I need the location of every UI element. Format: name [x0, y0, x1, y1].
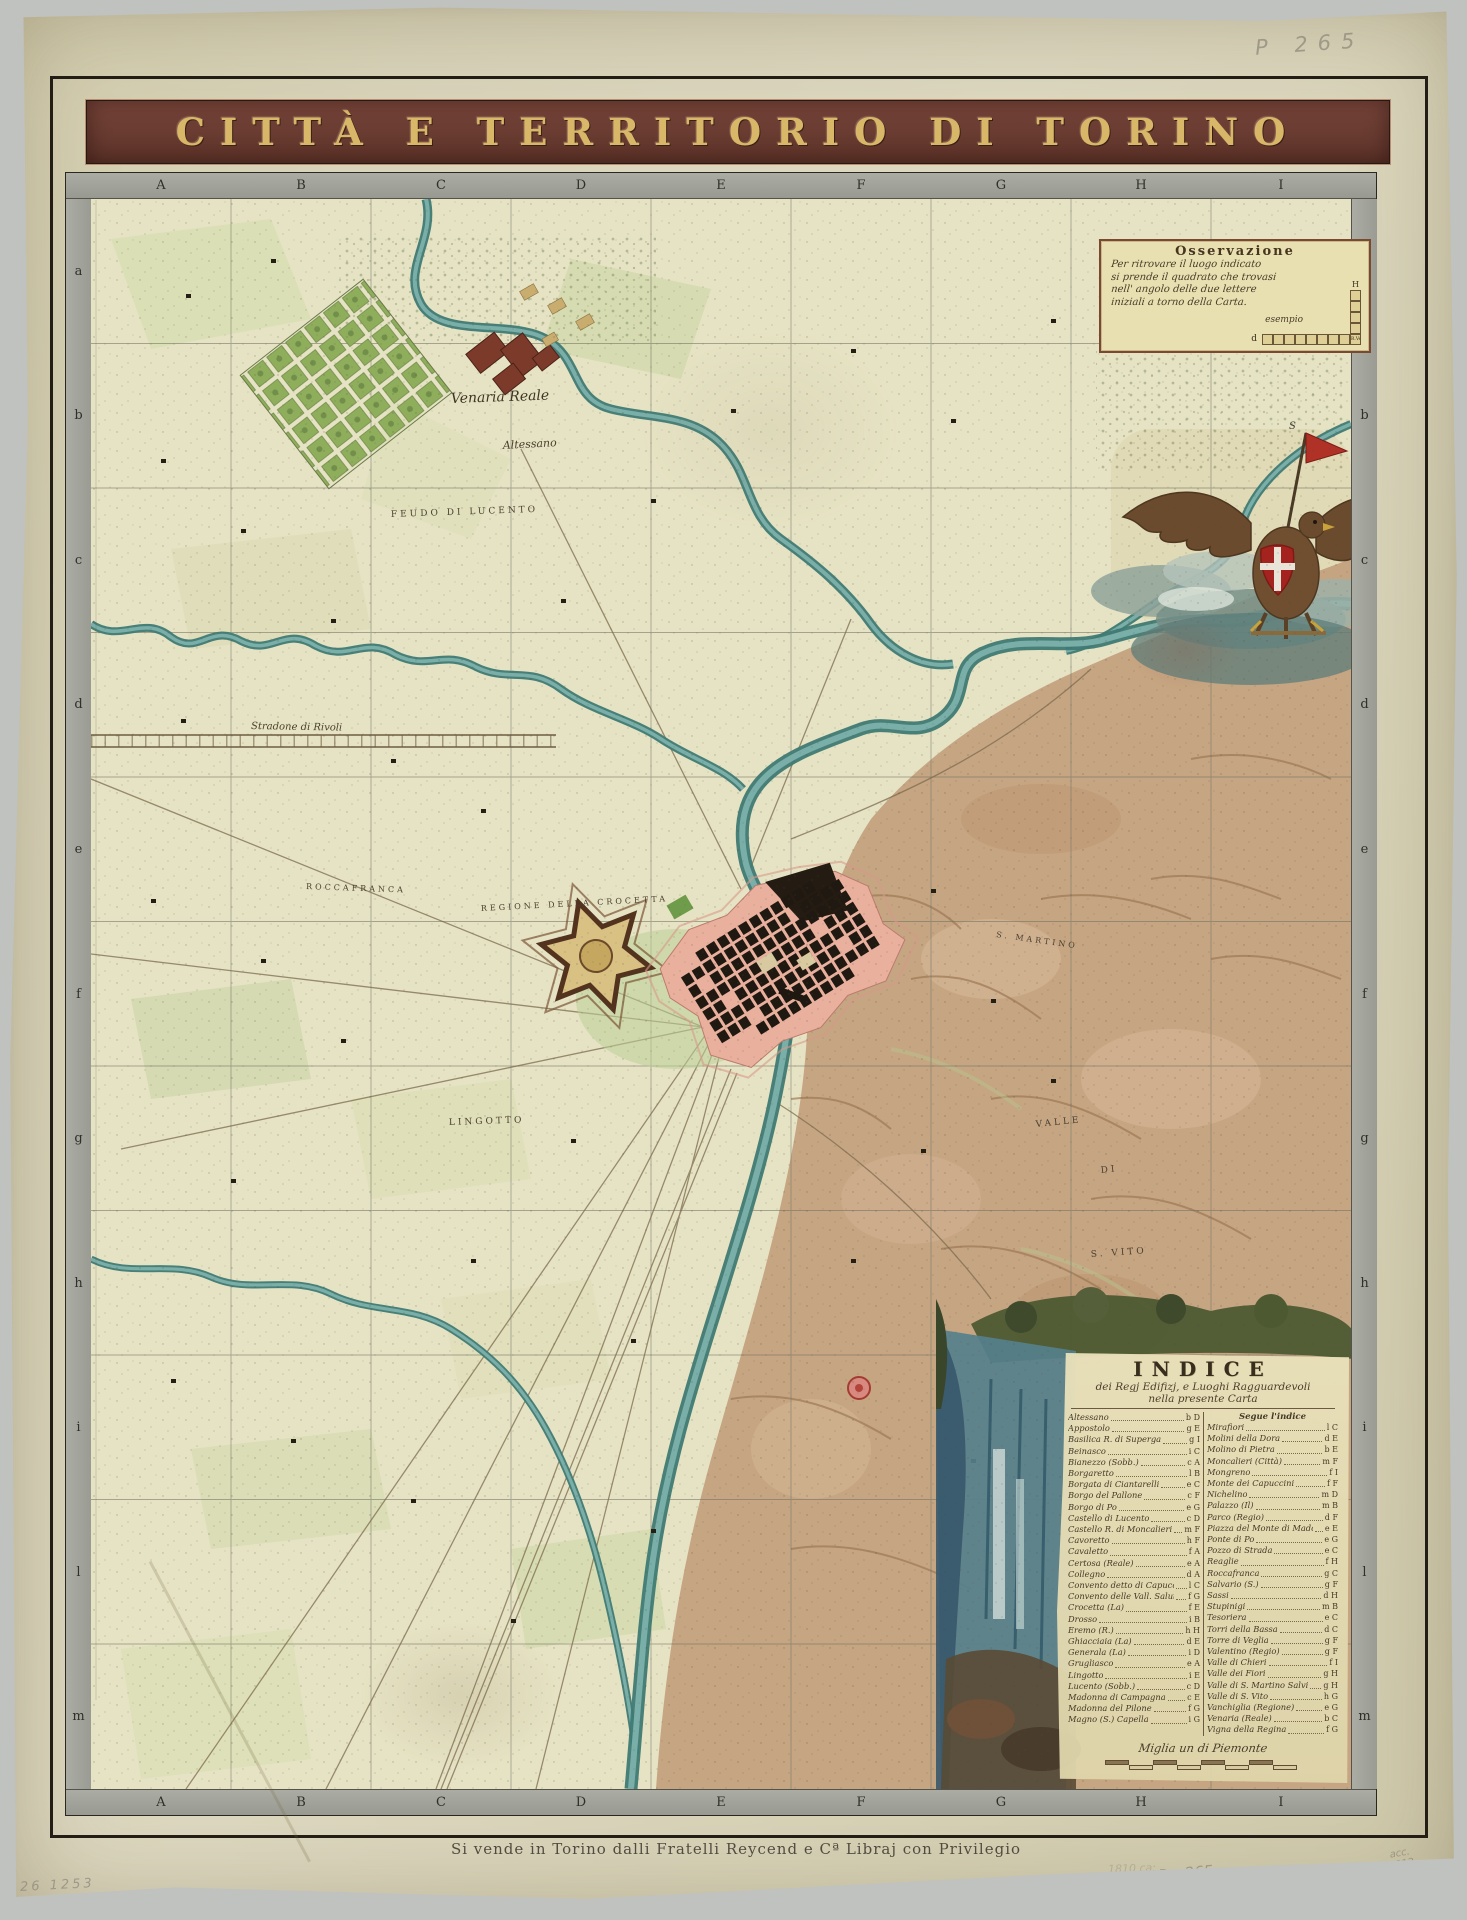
grid-letter: i	[1352, 1355, 1377, 1500]
grid-letter: c	[66, 488, 91, 633]
pencil-note-date: 1810 ca:	[1108, 1861, 1156, 1876]
grid-letter: I	[1211, 1790, 1351, 1815]
example-cell	[1306, 334, 1317, 345]
scale-segment	[1129, 1765, 1153, 1770]
grid-letter: D	[511, 1790, 651, 1815]
indice-entry: Valle dei Fiorig H	[1207, 1668, 1338, 1679]
grid-letter: h	[1352, 1211, 1377, 1356]
indice-entry: Mirafioril C	[1207, 1422, 1338, 1433]
indice-entry: Borgata di Ciantarellie C	[1068, 1479, 1200, 1490]
grid-letter: E	[651, 1790, 791, 1815]
indice-entry: Convento delle Vall. Salut.f G	[1068, 1591, 1200, 1602]
example-cell	[1339, 334, 1350, 345]
grid-letter: g	[66, 1066, 91, 1211]
indice-entry: Borgarettol B	[1068, 1468, 1200, 1479]
example-col-letter: H	[1352, 280, 1359, 289]
indice-panel: INDICE dei Regj Edifizj, e Luoghi Raggua…	[1057, 1353, 1349, 1783]
example-cell	[1273, 334, 1284, 345]
indice-entry: Piazza del Monte di Madonnae E	[1207, 1523, 1338, 1534]
grid-letter: B	[231, 173, 371, 198]
indice-entry: Madonna del Pilonef G	[1068, 1703, 1200, 1714]
indice-entry: Cavalettof A	[1068, 1546, 1200, 1557]
scale-label: Miglia un di Piemonte	[1064, 1741, 1342, 1755]
grid-letter: A	[91, 1790, 231, 1815]
grid-letter: C	[371, 1790, 511, 1815]
indice-subtitle-1: dei Regj Edifizj, e Luoghi Ragguardevoli	[1065, 1381, 1341, 1393]
indice-column-right: Segue l'indice Mirafioril CMolini della …	[1203, 1412, 1341, 1736]
indice-entry: Crocetta (La)f E	[1068, 1602, 1200, 1613]
indice-entry: Valle di Chierif I	[1207, 1657, 1338, 1668]
example-cell	[1295, 334, 1306, 345]
grid-letter: e	[1352, 777, 1377, 922]
indice-entry: Basilica R. di Supergag I	[1068, 1434, 1200, 1445]
grid-strip-bottom: ABCDEFGHI	[66, 1789, 1376, 1815]
indice-entry: Molini della Dorad E	[1207, 1433, 1338, 1444]
indice-entry: Collegnod A	[1068, 1569, 1200, 1580]
indice-entry: Vigna della Reginaf G	[1207, 1724, 1338, 1735]
example-cell	[1317, 334, 1328, 345]
indice-entry: Altessanob D	[1068, 1412, 1200, 1423]
indice-entry: Castello R. di Moncalierim F	[1068, 1524, 1200, 1535]
grid-letter: A	[91, 173, 231, 198]
grid-letter: m	[66, 1644, 91, 1789]
example-label: esempio	[1265, 315, 1303, 325]
grid-letter: c	[1352, 488, 1377, 633]
indice-column-left: Altessanob DAppostolog EBasilica R. di S…	[1065, 1412, 1203, 1736]
scale-area: Miglia un di Piemonte	[1065, 1741, 1341, 1773]
grid-letter: h	[66, 1211, 91, 1356]
example-cell	[1350, 323, 1361, 334]
indice-entry: Beinascoi C	[1068, 1446, 1200, 1457]
indice-entry: Castello di Lucentoc D	[1068, 1513, 1200, 1524]
indice-entry: Bianezzo (Sobb.)c A	[1068, 1457, 1200, 1468]
scale-segment	[1249, 1760, 1273, 1765]
indice-entry: Molino di Pietrab E	[1207, 1444, 1338, 1455]
example-row-letter: d	[1251, 334, 1257, 344]
grid-letter: H	[1071, 173, 1211, 198]
pencil-note-plate: P. - 265	[1157, 1862, 1214, 1885]
indice-entry: Generala (La)i D	[1068, 1647, 1200, 1658]
indice-entry: Lingottoi E	[1068, 1670, 1200, 1681]
observation-line: iniziali a torno della Carta.	[1110, 297, 1359, 310]
indice-entry: Pozzo di Stradae C	[1207, 1545, 1338, 1556]
scale-segment	[1177, 1765, 1201, 1770]
indice-entry: Mongrenof I	[1207, 1467, 1338, 1478]
grid-letter: D	[511, 173, 651, 198]
indice-entry: Parco (Regio)d F	[1207, 1512, 1338, 1523]
pencil-note-top-right: P 265	[1254, 28, 1365, 60]
map-interior: S Venaria RealeAltessanoFEUDO DI LUCENTO…	[91, 199, 1351, 1789]
scanner-backdrop: { "title_banner": {"text": "CITTÀ E TERR…	[0, 0, 1467, 1920]
indice-entry: Ponte di Poe G	[1207, 1534, 1338, 1545]
map-title: CITTÀ E TERRITORIO DI TORINO	[176, 110, 1301, 154]
indice-subtitle-2: nella presente Carta	[1065, 1393, 1341, 1405]
scale-segment	[1105, 1760, 1129, 1765]
indice-entry: Valentino (Regio)g F	[1207, 1646, 1338, 1657]
map-label: DI	[1100, 1164, 1118, 1176]
indice-entry: Stupinigim B	[1207, 1601, 1338, 1612]
example-cell	[1262, 334, 1273, 345]
scale-segment	[1201, 1760, 1225, 1765]
grid-strip-top: ABCDEFGHI	[66, 173, 1376, 199]
example-cell	[1350, 290, 1361, 301]
indice-entry: Convento detto di Capuccinil C	[1068, 1580, 1200, 1591]
observation-line: Per ritrovare il luogo indicato	[1110, 259, 1359, 272]
example-cell	[1328, 334, 1339, 345]
indice-entry: Sassid H	[1207, 1590, 1338, 1601]
grid-letter: G	[931, 173, 1071, 198]
indice-entry: Tesorierae C	[1207, 1612, 1338, 1623]
grid-letter: l	[1352, 1500, 1377, 1645]
indice-entry: Moncalieri (Città)m F	[1207, 1456, 1338, 1467]
example-cell	[1350, 312, 1361, 323]
scale-segment	[1153, 1760, 1177, 1765]
indice-entry: Grugliascoe A	[1068, 1658, 1200, 1669]
grid-strip-right: abcdefghilm	[1351, 199, 1377, 1789]
indice-entry: Cavorettoh F	[1068, 1535, 1200, 1546]
grid-letter: e	[66, 777, 91, 922]
grid-strip-left: abcdefghilm	[66, 199, 92, 1789]
publisher-imprint: Si vende in Torino dalli Fratelli Reycen…	[50, 1840, 1422, 1858]
indice-entry: Salvario (S.)g F	[1207, 1579, 1338, 1590]
indice-entry: Drossoi B	[1068, 1614, 1200, 1625]
indice-entry: Nichelinom D	[1207, 1489, 1338, 1500]
indice-entry: Borgo del Pallonec F	[1068, 1490, 1200, 1501]
grid-letter: g	[1352, 1066, 1377, 1211]
pencil-note-bottom-left: 26 1253	[20, 1876, 95, 1895]
grid-letter: I	[1211, 173, 1351, 198]
indice-entry: Torre di Vegliag F	[1207, 1635, 1338, 1646]
grid-letter: E	[651, 173, 791, 198]
grid-letter: G	[931, 1790, 1071, 1815]
map-block: ABCDEFGHI ABCDEFGHI abcdefghilm abcdefgh…	[65, 172, 1377, 1816]
observation-box: Osservazione Per ritrovare il luogo indi…	[1099, 239, 1371, 353]
indice-entry: Monte dei Capuccinif F	[1207, 1478, 1338, 1489]
grid-letter: a	[66, 199, 91, 344]
grid-letter: B	[231, 1790, 371, 1815]
example-cell: R.Ven	[1350, 334, 1361, 345]
indice-entry: Valle di S. Martino Salvig H	[1207, 1680, 1338, 1691]
grid-letter: f	[66, 922, 91, 1067]
indice-entry: Venaria (Reale)b C	[1207, 1713, 1338, 1724]
grid-letter: F	[791, 173, 931, 198]
map-sheet-paper: CITTÀ E TERRITORIO DI TORINO ABCDEFGHI A…	[0, 0, 1467, 1920]
pencil-note-accession: acc.1912	[1386, 1846, 1415, 1872]
pencil-note-engraver: Stagnon inc.	[998, 1875, 1080, 1893]
indice-entry: Magno (S.) Capellai G	[1068, 1714, 1200, 1725]
indice-right-header: Segue l'indice	[1207, 1412, 1338, 1422]
observation-title: Osservazione	[1111, 244, 1359, 259]
grid-letter: b	[66, 344, 91, 489]
indice-entry: Certosa (Reale)e A	[1068, 1558, 1200, 1569]
scale-segment	[1225, 1765, 1249, 1770]
observation-text: Per ritrovare il luogo indicatosi prende…	[1111, 259, 1359, 309]
indice-title: INDICE	[1065, 1357, 1341, 1381]
scale-bar	[1105, 1759, 1301, 1773]
title-banner: CITTÀ E TERRITORIO DI TORINO	[86, 100, 1390, 164]
indice-entry: Valle di S. Vitoh G	[1207, 1691, 1338, 1702]
grid-letter: d	[1352, 633, 1377, 778]
grid-letter: m	[1352, 1644, 1377, 1789]
indice-entry: Reaglief H	[1207, 1556, 1338, 1567]
grid-letter: i	[66, 1355, 91, 1500]
indice-entry: Lucento (Sobb.)c D	[1068, 1681, 1200, 1692]
grid-letter: f	[1352, 922, 1377, 1067]
grid-letter: C	[371, 173, 511, 198]
indice-entry: Vanchiglia (Regione)e G	[1207, 1702, 1338, 1713]
scale-segment	[1273, 1765, 1297, 1770]
example-cell	[1350, 301, 1361, 312]
example-cell	[1284, 334, 1295, 345]
grid-letter: d	[66, 633, 91, 778]
grid-letter: F	[791, 1790, 931, 1815]
grid-letter: b	[1352, 344, 1377, 489]
indice-entry: Appostolog E	[1068, 1423, 1200, 1434]
indice-entry: Roccafrancag C	[1207, 1568, 1338, 1579]
grid-letter: l	[66, 1500, 91, 1645]
observation-line: nell' angolo delle due lettere	[1110, 284, 1359, 297]
map-label: Stradone di Rivoli	[251, 721, 342, 734]
indice-entry: Palazzo (Il)m B	[1207, 1500, 1338, 1511]
indice-entry: Madonna di Campagnac E	[1068, 1692, 1200, 1703]
indice-entry: Borgo di Poe G	[1068, 1502, 1200, 1513]
grid-letter: H	[1071, 1790, 1211, 1815]
indice-entry: Ghiacciaia (La)d E	[1068, 1636, 1200, 1647]
observation-line: si prende il quadrato che trovasi	[1110, 272, 1359, 285]
indice-entry: Eremo (R.)h H	[1068, 1625, 1200, 1636]
indice-entry: Torri della Bassad C	[1207, 1624, 1338, 1635]
